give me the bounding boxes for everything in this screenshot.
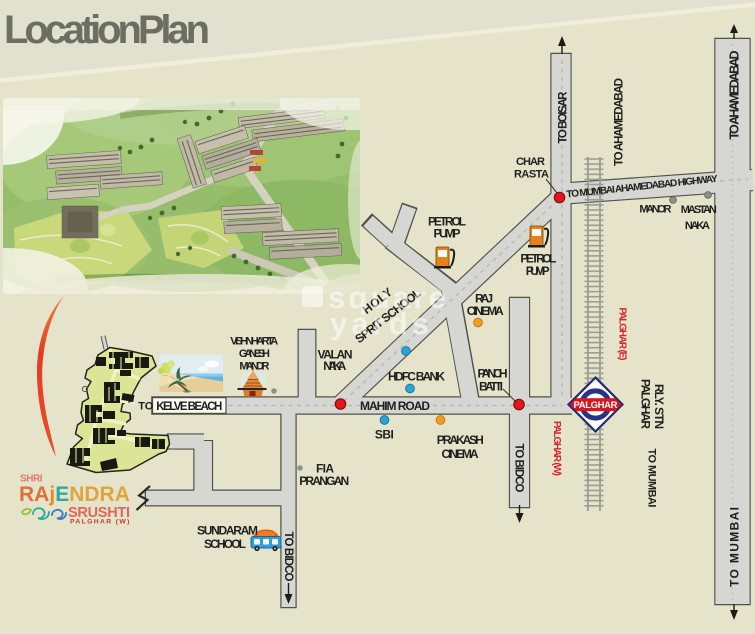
svg-text:NAKA: NAKA [685,220,710,232]
svg-text:GANESH: GANESH [239,348,270,360]
svg-text:TO MUMBAI: TO MUMBAI [646,449,658,508]
svg-text:TO: TO [138,401,154,413]
svg-text:PUMP: PUMP [434,226,461,240]
svg-text:PANCH: PANCH [478,367,508,381]
svg-text:RASTA: RASTA [514,168,549,180]
svg-text:yards: yards [330,306,429,341]
svg-text:PALGHAR (W): PALGHAR (W) [70,519,131,526]
svg-text:NAKA: NAKA [323,359,346,373]
svg-text:KELVE BEACH: KELVE BEACH [156,401,222,413]
svg-text:CINEMA: CINEMA [467,304,504,318]
svg-text:RAjENDRA: RAjENDRA [19,483,130,506]
svg-text:PALGHAR: PALGHAR [574,400,618,411]
svg-text:MANDIR: MANDIR [239,361,269,373]
svg-text:BATTI: BATTI [479,380,503,394]
svg-text:PRAKASH: PRAKASH [437,433,484,447]
svg-text:SUNDARAM: SUNDARAM [197,523,258,537]
svg-text:PRANGAN: PRANGAN [299,474,349,488]
svg-text:TO AHAMEDABAD: TO AHAMEDABAD [728,51,742,140]
svg-text:MANOR: MANOR [639,204,671,216]
svg-text:TO MUMBAI: TO MUMBAI [728,507,742,587]
svg-text:SBI: SBI [375,428,394,442]
svg-text:PALGHAR (E): PALGHAR (E) [617,308,628,361]
svg-text:PALGHAR (W): PALGHAR (W) [551,421,562,476]
svg-text:PALGHAR: PALGHAR [639,379,653,429]
svg-text:VISHNHARTA: VISHNHARTA [230,336,278,348]
svg-text:TO BIDCO: TO BIDCO [512,444,524,493]
svg-text:TO BIDCO: TO BIDCO [282,532,294,582]
svg-text:TO BOISAR: TO BOISAR [558,91,570,144]
svg-text:RLY. STN: RLY. STN [652,384,666,429]
svg-text:MAHIM ROAD: MAHIM ROAD [360,399,430,413]
svg-text:TO AHAMEDABAD: TO AHAMEDABAD [614,78,626,166]
svg-text:CINEMA: CINEMA [442,447,479,461]
svg-text:CHAR: CHAR [516,156,545,168]
svg-text:PUMP: PUMP [526,264,550,278]
svg-text:LocationPlan: LocationPlan [4,8,210,52]
svg-text:MASTAN: MASTAN [681,204,717,216]
svg-text:SCHOOL: SCHOOL [204,537,246,551]
svg-text:HDFC BANK: HDFC BANK [388,369,445,383]
